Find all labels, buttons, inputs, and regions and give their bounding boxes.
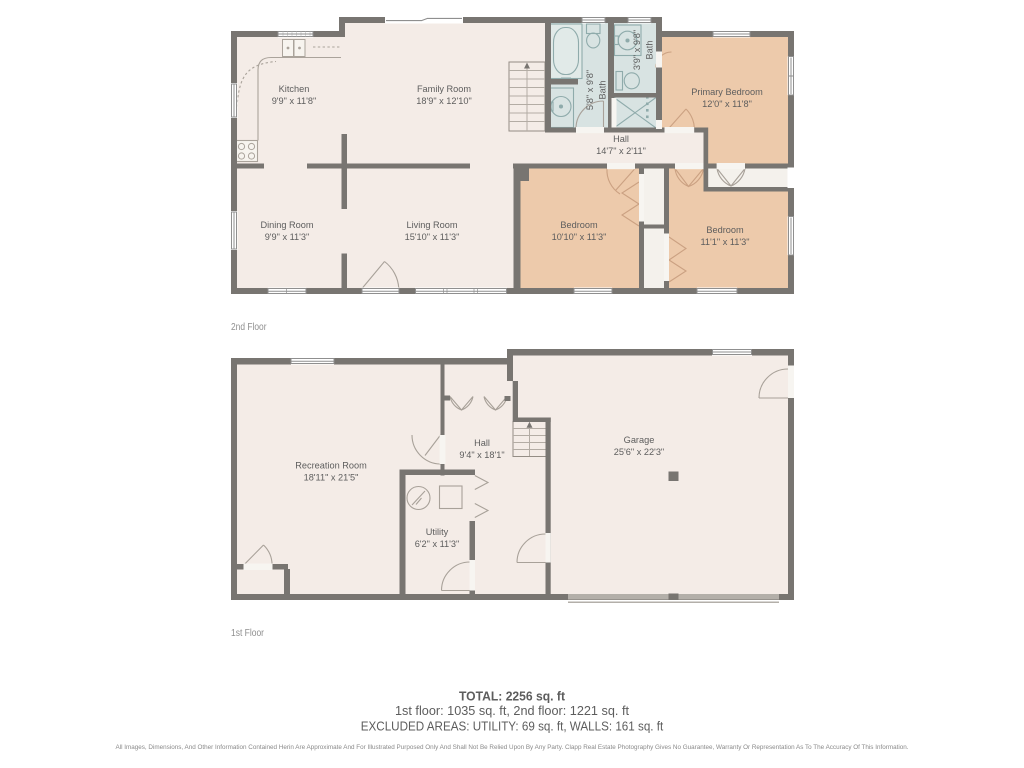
svg-text:12'0" x 11'8": 12'0" x 11'8"	[702, 99, 752, 109]
svg-text:Kitchen: Kitchen	[279, 84, 310, 94]
svg-text:11'1" x 11'3": 11'1" x 11'3"	[700, 237, 749, 247]
svg-text:25'6" x 22'3": 25'6" x 22'3"	[614, 447, 664, 457]
svg-text:Dining Room: Dining Room	[260, 220, 313, 230]
svg-text:Recreation Room: Recreation Room	[295, 461, 367, 471]
svg-text:6'2" x 11'3": 6'2" x 11'3"	[415, 539, 460, 549]
svg-text:10'10" x 11'3": 10'10" x 11'3"	[552, 232, 607, 242]
svg-text:5'8" x 9'8": 5'8" x 9'8"	[585, 70, 595, 110]
svg-text:1st floor: 1035 sq. ft, 2nd fl: 1st floor: 1035 sq. ft, 2nd floor: 1221 …	[395, 703, 629, 718]
svg-text:2nd Floor: 2nd Floor	[231, 321, 267, 333]
svg-text:3'9" x 9'8": 3'9" x 9'8"	[632, 30, 642, 70]
svg-text:Garage: Garage	[624, 435, 655, 445]
svg-text:Hall: Hall	[474, 438, 490, 448]
svg-text:9'9" x 11'8": 9'9" x 11'8"	[272, 96, 317, 106]
svg-text:TOTAL: 2256 sq. ft: TOTAL: 2256 sq. ft	[459, 689, 566, 704]
svg-text:Living Room: Living Room	[406, 220, 457, 230]
svg-text:9'9" x 11'3": 9'9" x 11'3"	[265, 232, 310, 242]
svg-text:18'11" x 21'5": 18'11" x 21'5"	[304, 473, 359, 483]
svg-text:Utility: Utility	[426, 527, 449, 537]
svg-text:Hall: Hall	[613, 134, 629, 144]
svg-text:Family Room: Family Room	[417, 84, 471, 94]
svg-text:Bath: Bath	[645, 41, 655, 60]
svg-text:Primary Bedroom: Primary Bedroom	[691, 87, 763, 97]
svg-text:14'7" x 2'11": 14'7" x 2'11"	[596, 146, 646, 156]
svg-text:All Images, Dimensions, And Ot: All Images, Dimensions, And Other Inform…	[116, 744, 909, 751]
svg-text:EXCLUDED AREAS: UTILITY: 69 sq: EXCLUDED AREAS: UTILITY: 69 sq. ft, WALL…	[361, 719, 664, 734]
svg-text:Bedroom: Bedroom	[560, 220, 598, 230]
svg-text:9'4" x 18'1": 9'4" x 18'1"	[459, 450, 504, 460]
svg-text:Bedroom: Bedroom	[706, 225, 744, 235]
svg-text:Bath: Bath	[598, 81, 608, 100]
svg-text:15'10" x 11'3": 15'10" x 11'3"	[405, 232, 460, 242]
svg-text:1st Floor: 1st Floor	[231, 627, 264, 639]
svg-text:18'9" x 12'10": 18'9" x 12'10"	[416, 96, 472, 106]
